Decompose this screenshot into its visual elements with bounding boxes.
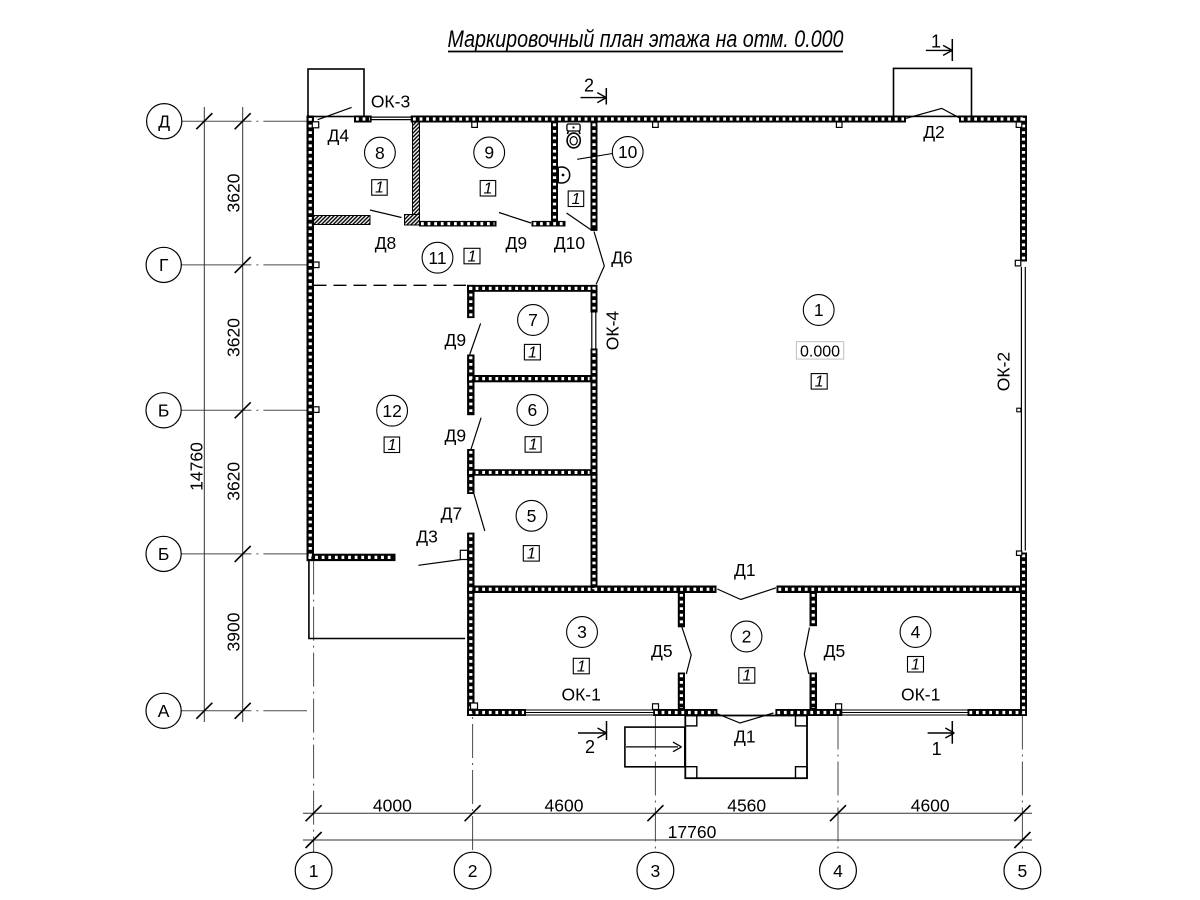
svg-text:1: 1 bbox=[814, 300, 824, 320]
svg-text:5: 5 bbox=[1018, 861, 1028, 881]
svg-text:Д4: Д4 bbox=[328, 126, 350, 146]
svg-text:Д6: Д6 bbox=[611, 248, 633, 268]
svg-text:ОК-3: ОК-3 bbox=[371, 91, 410, 111]
svg-text:3900: 3900 bbox=[223, 612, 243, 651]
svg-text:2: 2 bbox=[468, 861, 478, 881]
svg-text:Д2: Д2 bbox=[923, 122, 945, 142]
svg-text:Маркировочный план этажа на от: Маркировочный план этажа на отм. 0.000 bbox=[448, 26, 845, 53]
svg-text:1: 1 bbox=[572, 191, 581, 208]
svg-text:4: 4 bbox=[833, 861, 843, 881]
svg-text:10: 10 bbox=[618, 142, 638, 162]
svg-text:2: 2 bbox=[585, 737, 595, 757]
svg-text:Д1: Д1 bbox=[734, 560, 756, 580]
svg-text:Д5: Д5 bbox=[651, 641, 673, 661]
svg-text:ОК-4: ОК-4 bbox=[602, 311, 622, 351]
svg-text:Д9: Д9 bbox=[445, 330, 467, 350]
svg-text:4560: 4560 bbox=[727, 796, 766, 816]
svg-text:1: 1 bbox=[931, 32, 941, 52]
svg-text:1: 1 bbox=[387, 437, 396, 454]
svg-text:1: 1 bbox=[484, 181, 493, 198]
svg-text:3620: 3620 bbox=[223, 173, 243, 212]
svg-text:Д10: Д10 bbox=[554, 233, 586, 253]
svg-text:7: 7 bbox=[528, 310, 538, 330]
svg-text:Б: Б bbox=[158, 401, 169, 421]
svg-text:А: А bbox=[158, 701, 170, 721]
svg-text:Д8: Д8 bbox=[375, 233, 397, 253]
svg-text:1: 1 bbox=[529, 437, 538, 454]
svg-text:0.000: 0.000 bbox=[800, 344, 840, 361]
svg-text:17760: 17760 bbox=[668, 822, 717, 842]
svg-text:6: 6 bbox=[528, 400, 538, 420]
svg-text:1: 1 bbox=[528, 344, 537, 361]
svg-text:Д9: Д9 bbox=[445, 426, 467, 446]
svg-text:3: 3 bbox=[651, 861, 661, 881]
svg-text:1: 1 bbox=[911, 657, 920, 674]
svg-text:4: 4 bbox=[911, 622, 921, 642]
svg-text:1: 1 bbox=[932, 739, 942, 759]
svg-text:2: 2 bbox=[742, 627, 752, 647]
svg-text:Д7: Д7 bbox=[441, 503, 463, 523]
svg-text:1: 1 bbox=[527, 546, 536, 563]
svg-text:3: 3 bbox=[577, 622, 587, 642]
svg-text:1: 1 bbox=[577, 658, 586, 675]
svg-text:Д3: Д3 bbox=[416, 527, 438, 547]
svg-text:1: 1 bbox=[309, 861, 319, 881]
svg-text:Б: Б bbox=[158, 544, 169, 564]
svg-text:4600: 4600 bbox=[545, 796, 584, 816]
svg-text:1: 1 bbox=[468, 248, 477, 265]
svg-text:5: 5 bbox=[527, 506, 537, 526]
svg-text:2: 2 bbox=[584, 75, 594, 95]
svg-text:11: 11 bbox=[428, 248, 446, 268]
svg-text:9: 9 bbox=[484, 143, 494, 163]
svg-text:8: 8 bbox=[375, 143, 385, 163]
svg-text:12: 12 bbox=[382, 401, 401, 421]
svg-text:1: 1 bbox=[815, 374, 824, 391]
svg-text:1: 1 bbox=[375, 180, 384, 197]
svg-text:ОК-1: ОК-1 bbox=[562, 684, 601, 704]
svg-text:Д1: Д1 bbox=[734, 726, 756, 746]
svg-text:Д: Д bbox=[158, 111, 170, 131]
svg-text:Д5: Д5 bbox=[824, 641, 846, 661]
svg-text:ОК-2: ОК-2 bbox=[993, 352, 1013, 391]
svg-text:4000: 4000 bbox=[373, 796, 412, 816]
svg-text:Д9: Д9 bbox=[506, 233, 528, 253]
svg-text:Г: Г bbox=[159, 255, 169, 275]
svg-text:4600: 4600 bbox=[911, 796, 950, 816]
svg-text:ОК-1: ОК-1 bbox=[901, 684, 940, 704]
svg-text:14760: 14760 bbox=[186, 442, 206, 491]
svg-text:3620: 3620 bbox=[223, 318, 243, 357]
svg-text:3620: 3620 bbox=[223, 462, 243, 501]
svg-text:1: 1 bbox=[742, 668, 751, 685]
